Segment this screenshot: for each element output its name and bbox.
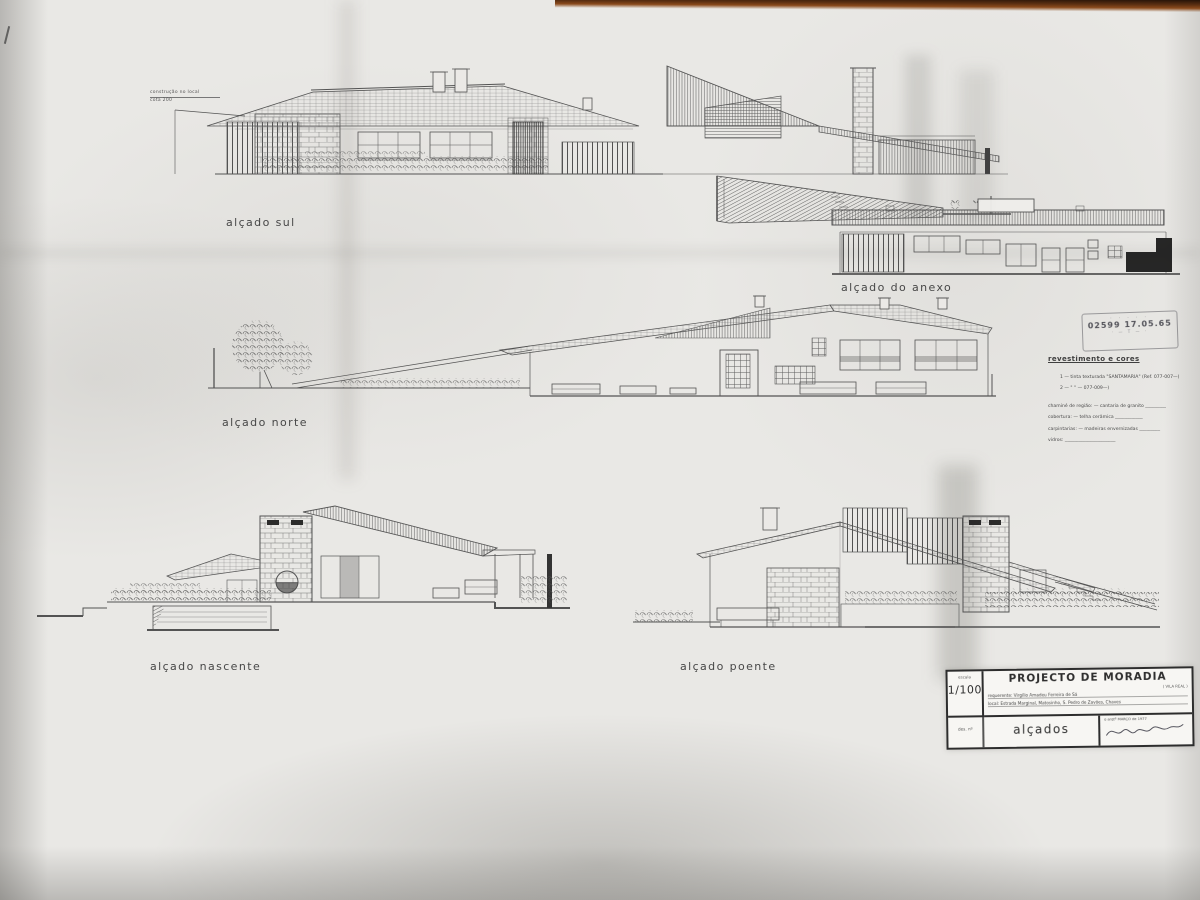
finishes-heading: revestimento e cores (1048, 355, 1198, 363)
finish-line: vidros: ______________________ (1048, 435, 1198, 446)
label-west-elevation: alçado poente (680, 660, 777, 673)
scale-value: 1/100 (948, 683, 982, 696)
north-elevation-drawing (200, 288, 1000, 428)
label-north-elevation: alçado norte (222, 416, 308, 429)
scale-cell: escala 1/100 (947, 671, 984, 717)
site-annotation-line1: construção no local (150, 90, 220, 98)
approval-stamp: · · · · · 02599 17.05.65 · — T — · (1081, 310, 1178, 351)
project-cell: PROJECTO DE MORADIA ( VILA REAL ) requer… (983, 668, 1192, 717)
site-annotation-line2: cota 200 (150, 98, 220, 105)
sheet-number-cell: des. nº (948, 717, 984, 747)
finish-line: carpintarias: — madeiras envernizadas __… (1048, 424, 1198, 435)
location-line: local: Estrada Marginal, Matosinho, S. P… (988, 698, 1188, 707)
drawing-name-cell: alçados o arqtº MARÇO de 1977 (984, 714, 1192, 747)
annex-elevation-drawing (826, 196, 1186, 292)
corner-mark (4, 26, 10, 44)
photographed-drawing-sheet: construção no local cota 200 alçado sul … (0, 0, 1200, 900)
title-block: escala 1/100 PROJECTO DE MORADIA ( VILA … (945, 666, 1194, 749)
site-annotation: construção no local cota 200 (150, 90, 220, 105)
drawing-name: alçados (984, 716, 1098, 748)
signature-cell: o arqtº MARÇO de 1977 (1098, 714, 1192, 745)
finish-line: chaminé de região: — cantaria de granito… (1048, 401, 1198, 412)
finish-line: 1 — tinta texturada "SANTAMARIA" (Ref. 0… (1048, 372, 1198, 383)
label-east-elevation: alçado nascente (150, 660, 261, 673)
east-elevation-drawing (35, 498, 570, 658)
west-elevation-drawing (625, 492, 1160, 660)
architect-signature (1102, 720, 1190, 741)
finish-line: cobertura: — telha cerâmica ____________ (1048, 412, 1198, 423)
scale-label: escala (948, 674, 982, 679)
label-south-elevation: alçado sul (226, 216, 296, 229)
table-edge-top (555, 0, 1200, 12)
finishes-legend: revestimento e cores 1 — tinta texturada… (1048, 355, 1198, 447)
finish-line: 2 — " " — 077-009—) (1048, 383, 1198, 394)
